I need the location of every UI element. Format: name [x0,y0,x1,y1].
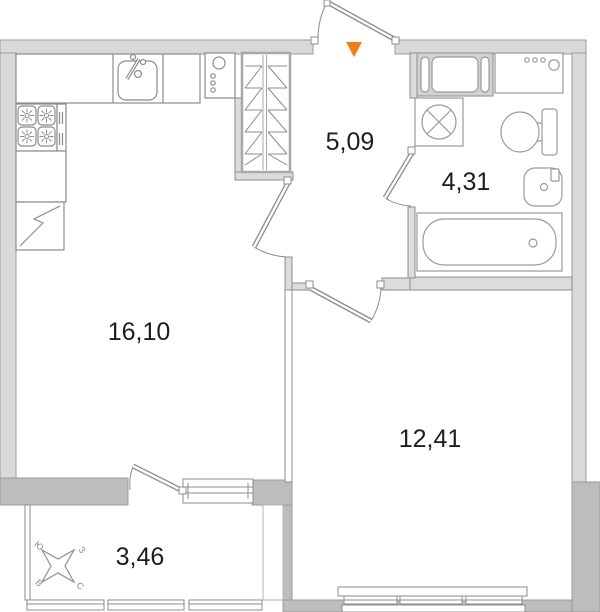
wall-top-right [395,40,586,54]
closet-symbol [242,53,290,172]
compass-west: З [77,544,88,555]
stove-symbol [16,104,66,151]
bedroom-window-symbol [338,587,527,612]
wall-right-lower [572,482,600,612]
wall-niche-side [283,505,292,602]
basin-symbol [524,168,562,206]
label-kitchen-living-room: 16,10 [108,318,171,346]
label-hallway: 5,09 [326,128,375,156]
partition-rooms [285,290,292,482]
cabinet-symbol [417,53,493,96]
bathtub-symbol [417,213,562,271]
washing-machine-symbol [415,98,463,146]
bathroom-fixtures [415,53,563,271]
partition-hall-stub [285,257,292,290]
label-bedroom: 12,41 [399,425,462,453]
compass-north: С [74,580,86,592]
label-balcony: 3,46 [116,543,165,571]
apartment-floor-plan: Ю З В С 16,10 5,09 4,31 12,41 3,46 [0,0,600,612]
kitchen-sink-symbol [118,55,157,101]
balcony-door [130,466,186,494]
area-labels: 16,10 5,09 4,31 12,41 3,46 [108,128,491,571]
kitchen-cabinet [16,151,66,202]
compass-rose: Ю З В С [32,539,87,592]
entrance-door [311,0,399,44]
entrance-marker-icon [346,42,362,57]
wall-niche-cap [252,480,292,505]
partition-bath-bottom [410,277,572,290]
exterior-niche [263,505,283,600]
bathroom-door [385,147,415,206]
bath-counter-symbol [495,53,563,93]
partition-bath-left-top [410,53,417,98]
partition-bath-left-stub [408,207,415,278]
label-bathroom: 4,31 [442,168,491,196]
floor-plan-canvas: Ю З В С 16,10 5,09 4,31 12,41 3,46 [0,0,600,612]
balcony-window-symbol [183,479,253,503]
kitchen-fixtures [16,53,235,250]
kitchen-unit-symbol [205,53,235,98]
wall-balcony-header [0,478,128,505]
compass-east: В [33,577,44,588]
wall-right [572,53,586,482]
toilet-symbol [501,109,557,155]
bedroom-door [306,281,384,321]
living-room-door [254,177,291,257]
kitchen-counter [16,54,200,103]
fridge-symbol [16,202,64,250]
compass-star-icon [42,550,74,582]
wall-left [0,53,16,478]
